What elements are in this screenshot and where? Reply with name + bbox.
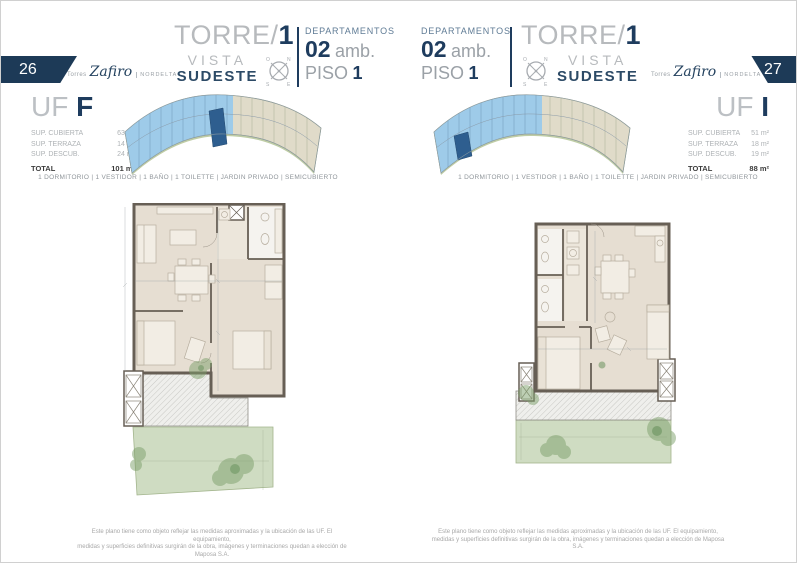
area-table-right: SUP. CUBIERTA51 m² SUP. TERRAZA18 m² SUP…: [688, 129, 769, 174]
tower-name: TORRE/1: [521, 21, 669, 50]
amb-label: amb.: [335, 41, 375, 61]
brand-name: Zafiro: [90, 64, 133, 80]
brand-prefix: Torres: [67, 72, 87, 78]
disclaimer-left: Este plano tiene como objeto reflejar la…: [73, 529, 351, 559]
piso-number: 1: [352, 63, 362, 83]
uf-letter: F: [76, 91, 93, 122]
brand-logo-right: Torres Zafiro NORDELTA: [651, 64, 761, 80]
floor-plan-uf-i: [507, 217, 687, 467]
amenities-line-right: 1 DORMITORIO | 1 VESTIDOR | 1 BAÑO | 1 T…: [447, 174, 769, 181]
amb-number: 02: [305, 36, 331, 62]
uf-label: UF: [716, 91, 753, 122]
tower-label: TORRE/: [521, 20, 626, 50]
tower-title-right: TORRE/1 ON SE VISTA SUDESTE: [521, 21, 669, 87]
piso-label: PISO: [421, 63, 464, 83]
tower-name: TORRE/1: [146, 21, 294, 50]
vista-block: VISTA SUDESTE: [557, 52, 638, 87]
disclaimer-right: Este plano tiene como objeto reflejar la…: [427, 529, 729, 552]
uf-letter: I: [761, 91, 769, 122]
piso-label: PISO: [305, 63, 348, 83]
departamentos-label: DEPARTAMENTOS: [305, 27, 395, 36]
vista-label: VISTA: [177, 52, 258, 68]
orientation-label: SUDESTE: [557, 68, 638, 86]
brochure-spread: 26 Torres Zafiro NORDELTA TORRE/1 VISTA …: [0, 0, 797, 563]
uf-label: UF: [31, 91, 68, 122]
orientation-label: SUDESTE: [177, 68, 258, 86]
tower-number: 1: [278, 20, 294, 50]
area-total-row: TOTAL88 m²: [688, 164, 769, 174]
compass-icon: ON SE: [521, 53, 551, 87]
site-plan-thumbnail-left: [115, 86, 331, 179]
brand-suffix: NORDELTA: [720, 72, 761, 78]
department-block-right: DEPARTAMENTOS 02 amb. PISO 1: [421, 27, 511, 83]
page-number: 26: [19, 61, 37, 78]
unit-title-uf-f: UF F: [31, 92, 93, 122]
svg-text:O: O: [266, 57, 270, 63]
svg-text:O: O: [523, 57, 527, 63]
amenities-line-left: 1 DORMITORIO | 1 VESTIDOR | 1 BAÑO | 1 T…: [27, 174, 349, 181]
area-row: SUP. TERRAZA18 m²: [688, 140, 769, 151]
header-divider-right: [510, 27, 512, 87]
page-number: 27: [764, 61, 782, 78]
area-row: SUP. CUBIERTA51 m²: [688, 129, 769, 140]
svg-text:N: N: [544, 57, 548, 63]
header-divider-left: [297, 27, 299, 87]
brand-prefix: Torres: [651, 72, 671, 78]
piso-number: 1: [468, 63, 478, 83]
tower-number: 1: [626, 20, 642, 50]
site-plan-thumbnail-right: [424, 86, 640, 179]
amb-number: 02: [421, 36, 447, 62]
departamentos-label: DEPARTAMENTOS: [421, 27, 511, 36]
vista-block: VISTA SUDESTE: [177, 52, 258, 87]
area-row: SUP. DESCUB.19 m²: [688, 150, 769, 161]
tower-1-footprint: [424, 86, 542, 179]
brand-name: Zafiro: [674, 64, 717, 80]
tower-label: TORRE/: [174, 20, 279, 50]
department-block-left: DEPARTAMENTOS 02 amb. PISO 1: [305, 27, 395, 83]
svg-text:N: N: [287, 57, 291, 63]
compass-icon: ON SE: [264, 53, 294, 87]
page-number-tab-left: 26: [1, 56, 77, 83]
amb-label: amb.: [451, 41, 491, 61]
floor-plan-uf-f: [113, 203, 299, 513]
vista-label: VISTA: [557, 52, 638, 68]
unit-title-uf-i: UF I: [689, 92, 769, 122]
tower-title-left: TORRE/1 VISTA SUDESTE ON SE: [146, 21, 294, 87]
